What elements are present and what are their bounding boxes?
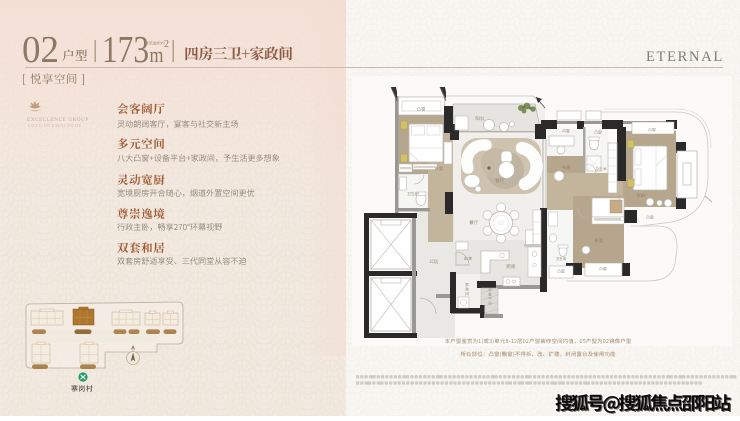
svg-text:ETERNAL: ETERNAL	[646, 49, 724, 65]
svg-text:2: 2	[164, 39, 169, 50]
svg-text:02: 02	[22, 29, 59, 71]
svg-text:173: 173	[102, 29, 149, 71]
svg-text:EXCELLENCE REAL ESTATE: EXCELLENCE REAL ESTATE	[28, 124, 82, 128]
svg-text:EXCELLENCE GROUP: EXCELLENCE GROUP	[27, 117, 89, 123]
svg-text:m: m	[150, 42, 164, 67]
